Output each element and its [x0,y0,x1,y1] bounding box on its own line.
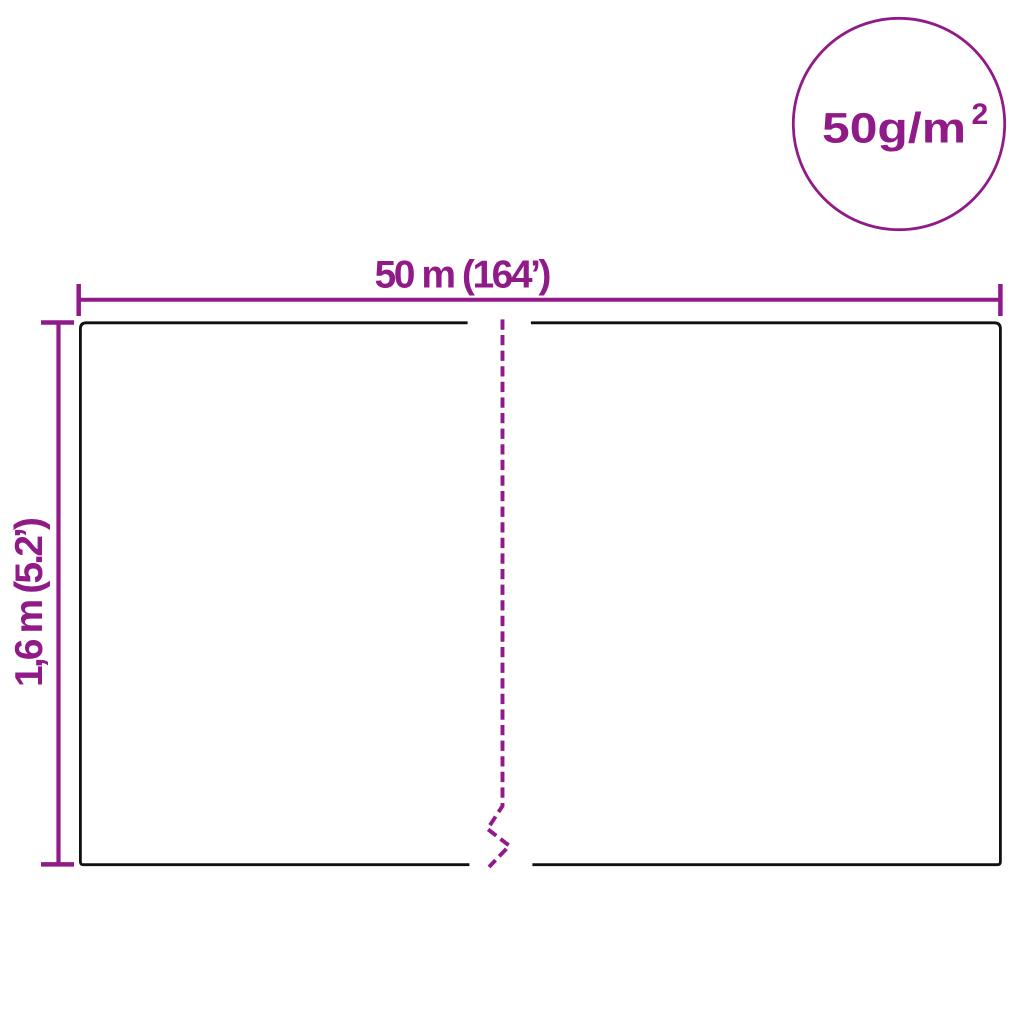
svg-text:50 m (164’): 50 m (164’) [375,254,552,297]
svg-text:50g/m: 50g/m [822,104,966,152]
svg-text:1,6 m (5.2’): 1,6 m (5.2’) [8,517,51,687]
svg-text:2: 2 [972,98,989,131]
